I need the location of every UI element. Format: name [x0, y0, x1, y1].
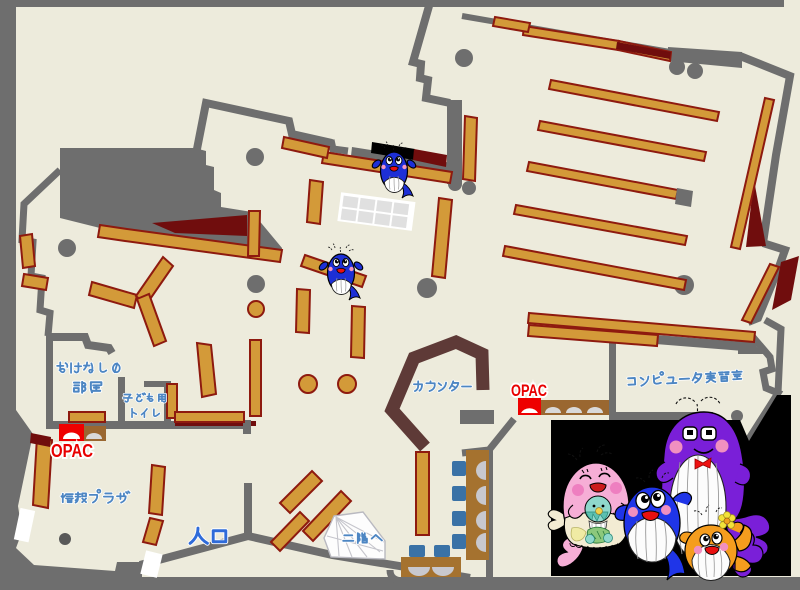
svg-text:OPAC: OPAC: [51, 441, 93, 461]
svg-text:OPAC: OPAC: [511, 381, 547, 400]
